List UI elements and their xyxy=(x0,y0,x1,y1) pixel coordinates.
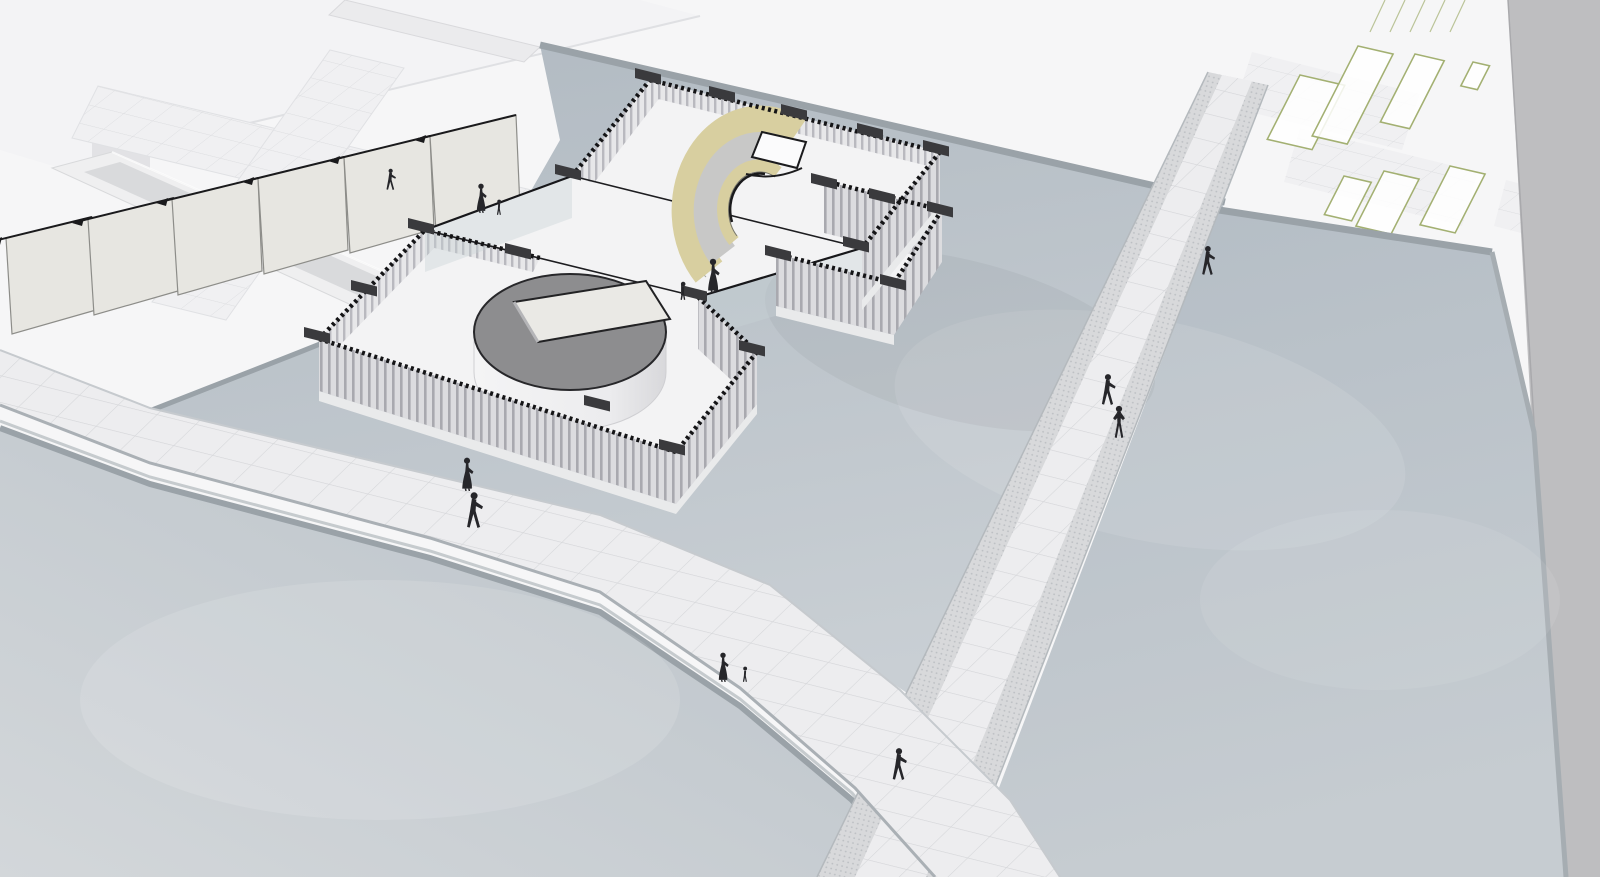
render-viewport: Aerial axonometric 3D rendering of a sla… xyxy=(0,0,1600,877)
pool-sheen-2 xyxy=(80,580,680,820)
pool-sheen-3 xyxy=(1200,510,1560,690)
site-svg: Aerial axonometric 3D rendering of a sla… xyxy=(0,0,1600,877)
